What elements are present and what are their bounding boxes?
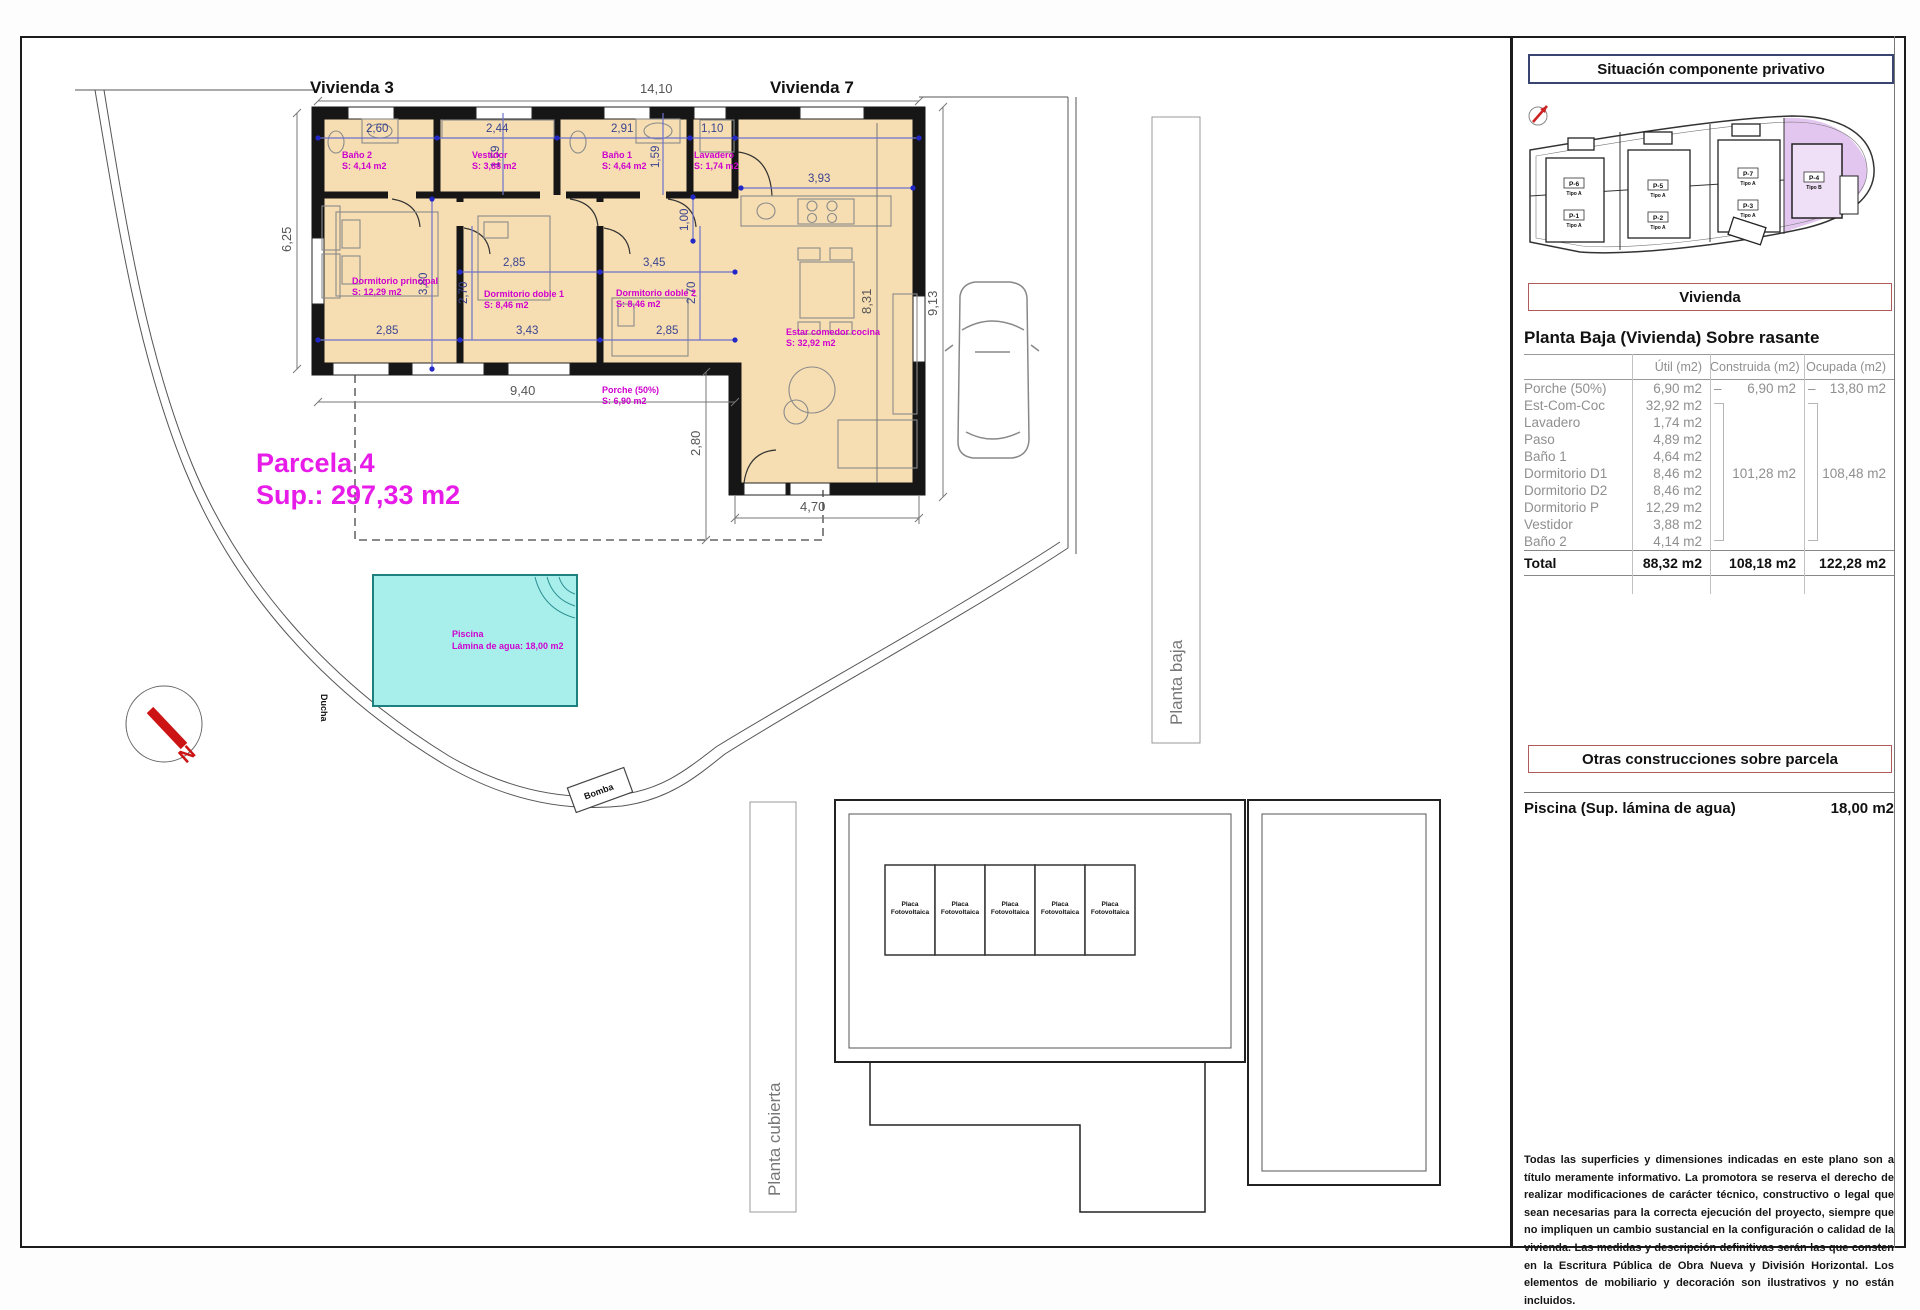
svg-text:3,93: 3,93 (808, 173, 830, 185)
svg-text:P-7: P-7 (1743, 171, 1754, 178)
svg-text:Lámina de agua: 18,00 m2: Lámina de agua: 18,00 m2 (452, 641, 564, 651)
legal-disclaimer: Todas las superficies y dimensiones indi… (1524, 1152, 1894, 1310)
col-ocupada: Ocupada (m2) (1804, 355, 1894, 379)
table-row: Dormitorio D18,46 m2 101,28 m2108,48 m2 (1524, 465, 1894, 482)
svg-text:4,70: 4,70 (800, 499, 825, 514)
ocupada-group-bracket (1808, 403, 1818, 541)
svg-text:3,43: 3,43 (516, 325, 538, 337)
svg-text:Sup.: 297,33 m2: Sup.: 297,33 m2 (256, 480, 460, 510)
svg-text:S: 32,92 m2: S: 32,92 m2 (786, 338, 836, 348)
svg-text:P-1: P-1 (1569, 213, 1580, 220)
vivienda-title: Vivienda (1528, 283, 1892, 311)
svg-text:Fotovoltaica: Fotovoltaica (1091, 909, 1130, 916)
table-row: Dormitorio P12,29 m2 (1524, 499, 1894, 516)
svg-text:P-6: P-6 (1569, 181, 1580, 188)
svg-text:Tipo A: Tipo A (1650, 225, 1666, 231)
planta-cubierta-box: Planta cubierta (750, 802, 796, 1212)
svg-text:2,85: 2,85 (656, 325, 678, 337)
svg-text:S: 4,64 m2: S: 4,64 m2 (602, 161, 647, 171)
svg-text:2,44: 2,44 (486, 123, 509, 135)
svg-text:1,00: 1,00 (679, 209, 691, 231)
table-subtitle: Planta Baja (Vivienda) Sobre rasante (1524, 328, 1819, 348)
svg-text:Planta cubierta: Planta cubierta (765, 1082, 784, 1196)
planta-baja-box: Planta baja (1152, 117, 1200, 743)
svg-text:2,85: 2,85 (376, 325, 398, 337)
svg-text:Placa: Placa (1002, 901, 1019, 908)
car (945, 282, 1039, 458)
table-header: Útil (m2) Construida (m2) Ocupada (m2) (1524, 354, 1894, 380)
table-row: Vestidor3,88 m2 (1524, 516, 1894, 533)
table-row: Dormitorio D28,46 m2 (1524, 482, 1894, 499)
svg-text:Tipo A: Tipo A (1740, 213, 1756, 219)
svg-text:S: 12,29 m2: S: 12,29 m2 (352, 287, 402, 297)
svg-text:2,60: 2,60 (366, 123, 388, 135)
svg-text:Vestidor: Vestidor (472, 150, 508, 160)
svg-text:Placa: Placa (1102, 901, 1119, 908)
pool: Piscina Lámina de agua: 18,00 m2 (373, 575, 577, 706)
piscina-row: Piscina (Sup. lámina de agua) 18,00 m2 (1524, 800, 1894, 817)
table-row: Paso4,89 m2 (1524, 431, 1894, 448)
svg-text:Fotovoltaica: Fotovoltaica (891, 909, 930, 916)
ducha-label: Ducha (319, 694, 329, 723)
area-table: Útil (m2) Construida (m2) Ocupada (m2) P… (1524, 354, 1894, 576)
otras-title: Otras construcciones sobre parcela (1528, 745, 1892, 773)
svg-text:Piscina: Piscina (452, 629, 485, 639)
svg-text:8,31: 8,31 (859, 289, 874, 314)
col-construida: Construida (m2) (1710, 355, 1804, 379)
svg-text:S: 1,74 m2: S: 1,74 m2 (694, 161, 739, 171)
vivienda3-label: Vivienda 3 (310, 78, 394, 97)
info-panel: Situación componente privativo (1524, 36, 1896, 1244)
svg-text:2,91: 2,91 (611, 123, 633, 135)
column-separator (1632, 354, 1633, 594)
svg-text:Placa: Placa (1052, 901, 1069, 908)
svg-text:3,45: 3,45 (643, 257, 665, 269)
svg-text:9,13: 9,13 (925, 291, 940, 316)
svg-text:Tipo A: Tipo A (1566, 223, 1582, 229)
piscina-label: Piscina (Sup. lámina de agua) (1524, 800, 1736, 817)
svg-text:Porche (50%): Porche (50%) (602, 385, 659, 395)
svg-text:1,10: 1,10 (701, 123, 723, 135)
north-compass: N (126, 686, 202, 768)
svg-text:Tipo A: Tipo A (1650, 193, 1666, 199)
svg-text:Baño 1: Baño 1 (602, 150, 632, 160)
solar-panels: PlacaFotovoltaica PlacaFotovoltaica Plac… (885, 865, 1135, 955)
svg-text:Dormitorio principal: Dormitorio principal (352, 276, 438, 286)
svg-text:14,10: 14,10 (640, 81, 673, 96)
site-location-map: P-6Tipo A P-1Tipo A P-5Tipo A P-2Tipo A … (1524, 92, 1894, 304)
compass-icon (1529, 106, 1547, 125)
svg-text:Fotovoltaica: Fotovoltaica (991, 909, 1030, 916)
parcela-label: Parcela 4 Sup.: 297,33 m2 (256, 448, 460, 510)
svg-text:Dormitorio doble 2: Dormitorio doble 2 (616, 288, 696, 298)
svg-text:Placa: Placa (952, 901, 969, 908)
svg-text:P-4: P-4 (1809, 175, 1820, 182)
svg-text:P-3: P-3 (1743, 203, 1754, 210)
svg-text:Planta baja: Planta baja (1167, 639, 1186, 725)
svg-text:Lavadero: Lavadero (694, 150, 735, 160)
svg-text:Placa: Placa (902, 901, 919, 908)
column-separator (1710, 354, 1711, 594)
svg-text:Dormitorio doble 1: Dormitorio doble 1 (484, 289, 564, 299)
table-row: Porche (50%)6,90 m2 –6,90 m2 –13,80 m2 (1524, 380, 1894, 397)
table-row: Est-Com-Coc32,92 m2 (1524, 397, 1894, 414)
svg-text:2,85: 2,85 (503, 257, 525, 269)
svg-text:2,80: 2,80 (688, 431, 703, 456)
svg-text:S: 8,46 m2: S: 8,46 m2 (484, 300, 529, 310)
svg-text:9,40: 9,40 (510, 383, 535, 398)
svg-text:Fotovoltaica: Fotovoltaica (941, 909, 980, 916)
svg-text:6,25: 6,25 (279, 227, 294, 252)
svg-text:S: 4,14 m2: S: 4,14 m2 (342, 161, 387, 171)
rule (1524, 792, 1894, 793)
svg-text:2,70: 2,70 (458, 282, 470, 304)
svg-text:Tipo A: Tipo A (1740, 181, 1756, 187)
svg-text:S: 6,90 m2: S: 6,90 m2 (602, 396, 647, 406)
svg-text:P-2: P-2 (1653, 215, 1664, 222)
svg-text:Fotovoltaica: Fotovoltaica (1041, 909, 1080, 916)
table-row: Lavadero1,74 m2 (1524, 414, 1894, 431)
svg-text:P-5: P-5 (1653, 183, 1664, 190)
svg-text:Parcela 4: Parcela 4 (256, 448, 375, 478)
col-util: Útil (m2) (1632, 355, 1710, 379)
roof-plan (835, 800, 1440, 1212)
svg-text:Tipo A: Tipo A (1566, 191, 1582, 197)
column-separator (1804, 354, 1805, 594)
vivienda7-label: Vivienda 7 (770, 78, 854, 97)
situacion-title: Situación componente privativo (1528, 54, 1894, 84)
svg-text:Estar comedor cocina: Estar comedor cocina (786, 327, 881, 337)
svg-text:Tipo B: Tipo B (1806, 185, 1822, 191)
svg-text:Baño 2: Baño 2 (342, 150, 372, 160)
table-total-row: Total88,32 m2 108,18 m2122,28 m2 (1524, 550, 1894, 576)
svg-text:S: 3,88 m2: S: 3,88 m2 (472, 161, 517, 171)
construida-group-bracket (1714, 403, 1724, 541)
svg-text:1,59: 1,59 (650, 146, 662, 168)
table-row: Baño 24,14 m2 (1524, 533, 1894, 550)
svg-text:S: 8,46 m2: S: 8,46 m2 (616, 299, 661, 309)
piscina-value: 18,00 m2 (1831, 800, 1894, 817)
table-row: Baño 14,64 m2 (1524, 448, 1894, 465)
